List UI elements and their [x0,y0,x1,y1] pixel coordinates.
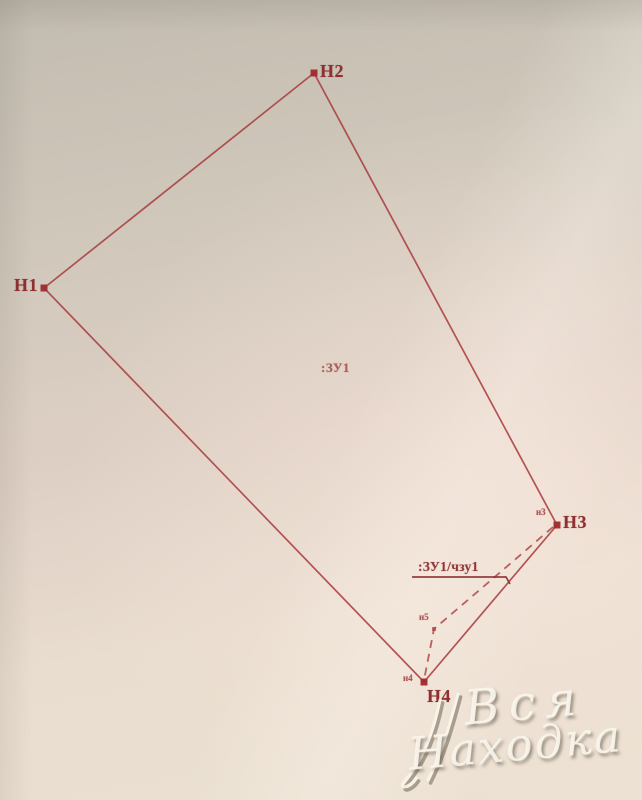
parcel-plan-svg [0,0,642,800]
point-label-n4: н4 [403,674,413,683]
point-label-n5: н5 [419,613,429,622]
watermark-flourish [390,686,480,796]
part-label: :ЗУ1/чзу1 [418,560,479,574]
point-label-h1: Н1 [14,276,38,294]
photographed-survey-scheme: Н1 Н2 Н3 Н4 н3 н4 н5 :ЗУ1 :ЗУ1/чзу1 Вся … [0,0,642,800]
point-marker-h3 [554,522,561,529]
part-boundary-dashed-line [424,527,553,680]
plan-drawing-layer: Н1 Н2 Н3 Н4 н3 н4 н5 :ЗУ1 :ЗУ1/чзу1 [0,0,642,800]
point-label-n3: н3 [536,508,546,517]
parcel-label: :ЗУ1 [321,361,350,374]
point-marker-h4 [421,679,428,686]
point-marker-n5 [432,627,436,631]
point-label-h2: Н2 [320,62,344,80]
point-marker-h1 [41,285,48,292]
point-marker-h2 [311,70,318,77]
part-label-leader-line [412,577,510,584]
parcel-boundary-line [44,73,557,682]
point-label-h3: Н3 [563,513,587,531]
